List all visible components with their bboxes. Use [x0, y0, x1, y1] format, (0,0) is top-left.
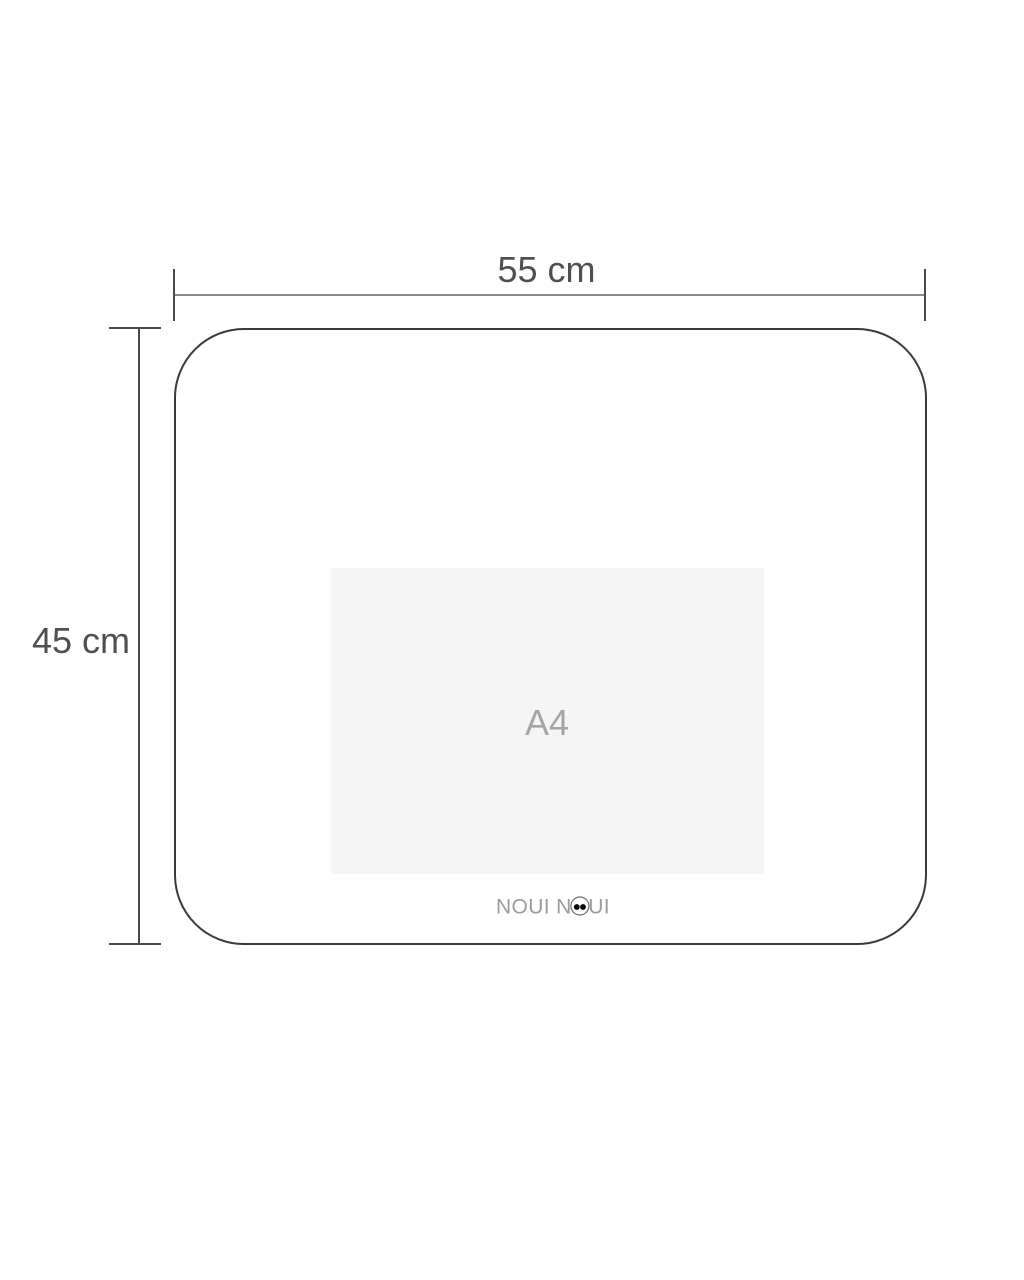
svg-text:NOUI N: NOUI N	[496, 896, 572, 919]
svg-text:UI: UI	[588, 896, 610, 919]
